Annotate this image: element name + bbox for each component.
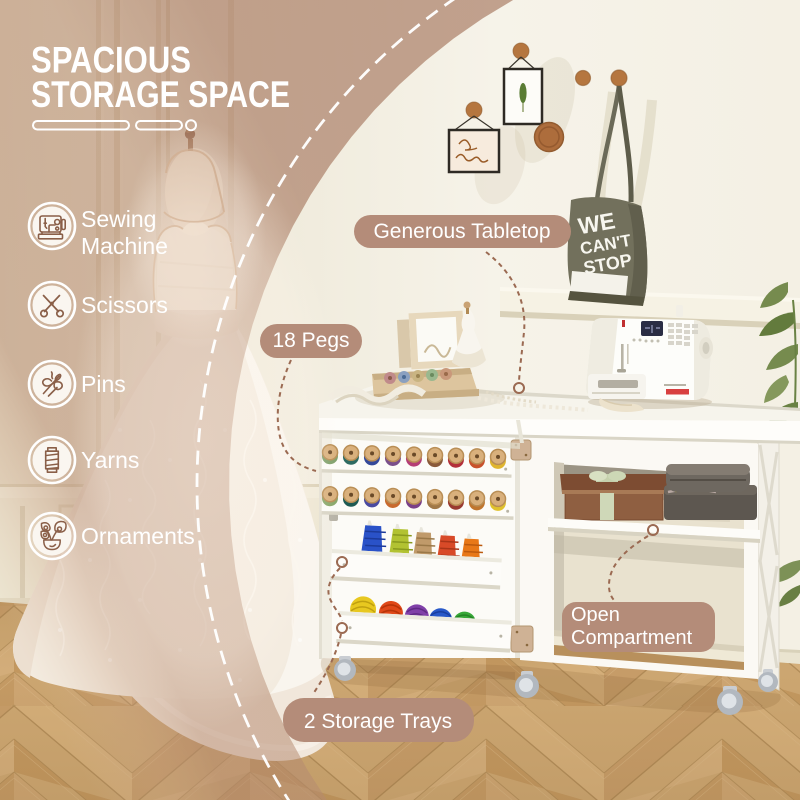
svg-text:Ornaments: Ornaments: [81, 523, 195, 549]
svg-text:Pins: Pins: [81, 371, 126, 397]
svg-text:Scissors: Scissors: [81, 292, 168, 318]
svg-text:Compartment: Compartment: [571, 627, 693, 649]
svg-text:Open: Open: [571, 604, 620, 626]
svg-text:2 Storage Trays: 2 Storage Trays: [304, 710, 452, 733]
svg-text:Sewing: Sewing: [81, 206, 156, 232]
svg-text:Yarns: Yarns: [81, 447, 139, 473]
svg-text:Machine: Machine: [81, 233, 168, 259]
svg-text:18 Pegs: 18 Pegs: [272, 329, 349, 352]
svg-text:STORAGE SPACE: STORAGE SPACE: [31, 74, 290, 115]
svg-text:Generous Tabletop: Generous Tabletop: [373, 220, 550, 243]
